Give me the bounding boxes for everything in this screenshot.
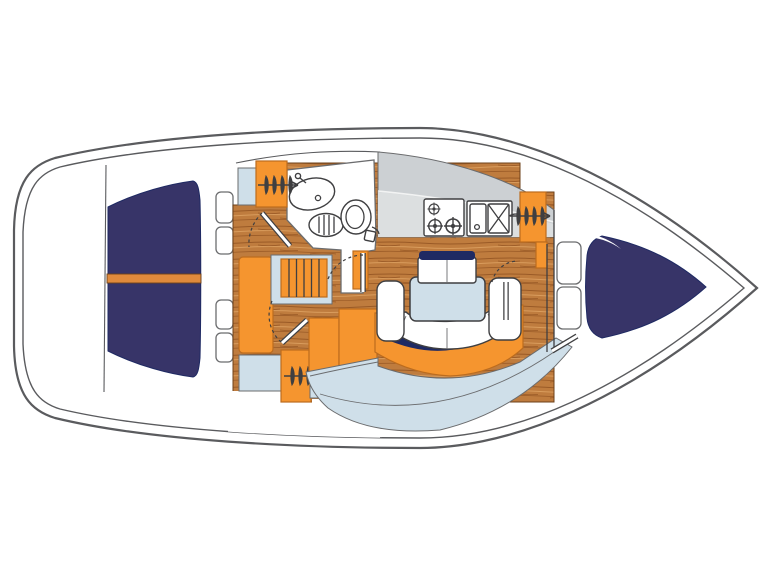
aft-berth-stripe [107,274,201,283]
small-cabinet [536,242,547,268]
boat-floor-plan [0,0,768,576]
companionway [271,255,332,304]
shelf-locker [216,333,233,362]
leaf-navy-edge [419,251,475,260]
side-bench-blue [239,355,281,391]
settee-cushion-left [377,281,404,341]
stove-icon [424,199,464,236]
aft-cabin [107,179,214,379]
shower-drain-icon [309,214,343,237]
bow-shelf-locker [557,242,581,284]
bow-shelf-locker [557,287,581,329]
shelf-locker [216,227,233,254]
nav-seat [309,318,339,372]
folding-table-leaf [418,251,476,283]
shelf-locker [216,300,233,329]
shelf-locker [216,192,233,223]
side-cabinet-blue [238,168,256,205]
aft-cabin-cabinet [239,257,273,353]
floor-plan-svg [0,0,768,576]
